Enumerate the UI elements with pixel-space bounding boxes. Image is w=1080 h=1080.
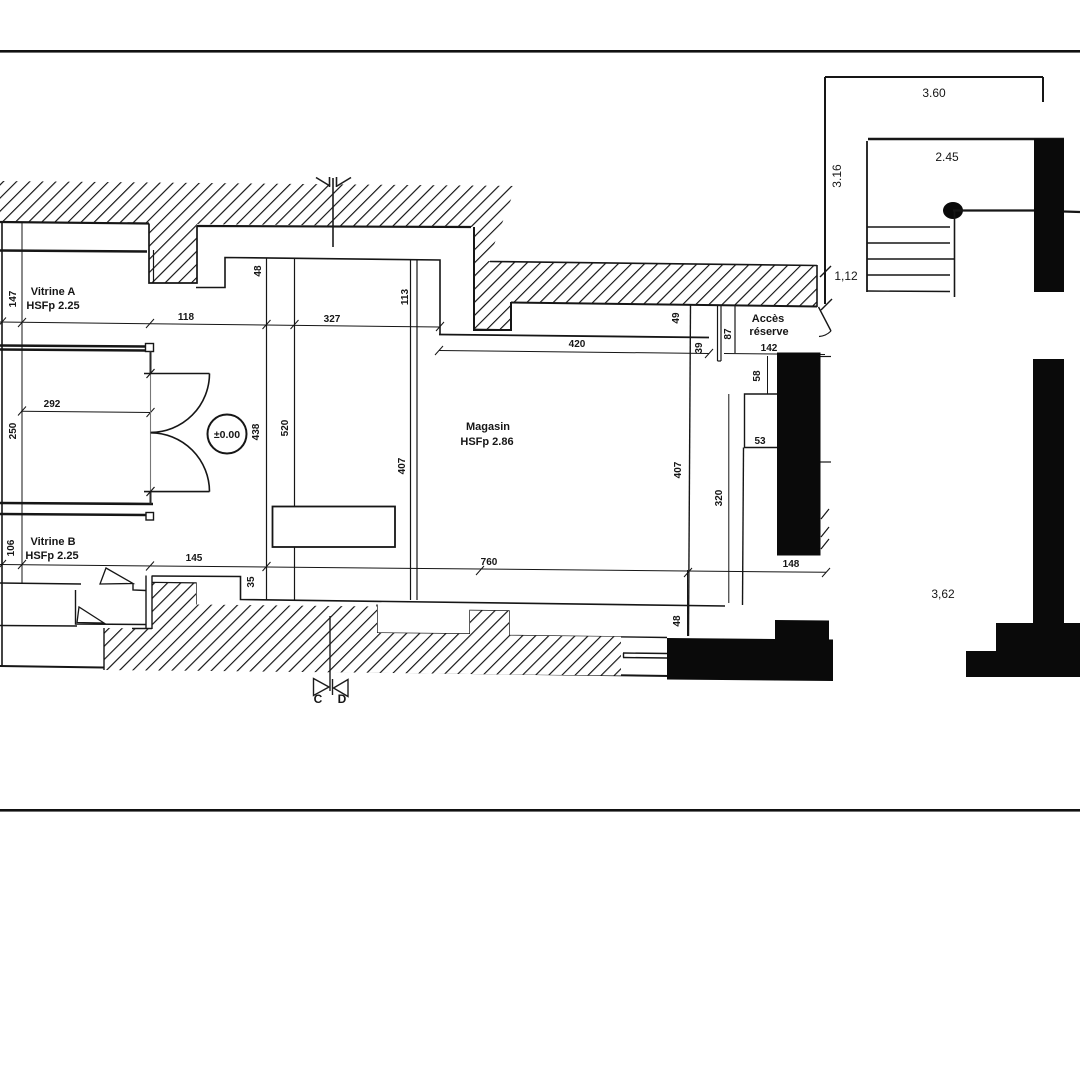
- svg-text:HSFp 2.25: HSFp 2.25: [25, 550, 78, 562]
- svg-text:53: 53: [754, 436, 766, 447]
- svg-text:2.45: 2.45: [935, 150, 959, 164]
- svg-text:118: 118: [178, 312, 195, 323]
- svg-text:C: C: [314, 692, 323, 706]
- svg-text:réserve: réserve: [749, 326, 788, 338]
- svg-text:39: 39: [694, 342, 705, 354]
- svg-text:48: 48: [672, 615, 683, 627]
- svg-text:HSFp 2.86: HSFp 2.86: [460, 436, 513, 448]
- svg-text:D: D: [338, 692, 347, 706]
- svg-text:407: 407: [673, 461, 684, 478]
- svg-text:1,12: 1,12: [834, 269, 858, 283]
- svg-text:407: 407: [397, 457, 408, 474]
- svg-text:3,62: 3,62: [931, 587, 955, 601]
- svg-text:320: 320: [714, 489, 725, 506]
- svg-text:292: 292: [44, 399, 61, 410]
- svg-text:Vitrine B: Vitrine B: [30, 536, 75, 548]
- svg-text:327: 327: [324, 314, 341, 325]
- svg-text:±0.00: ±0.00: [214, 429, 240, 441]
- svg-text:3.60: 3.60: [922, 86, 946, 100]
- svg-text:420: 420: [569, 339, 586, 350]
- svg-text:438: 438: [251, 423, 262, 440]
- svg-text:520: 520: [280, 419, 291, 436]
- svg-text:58: 58: [752, 370, 763, 382]
- svg-text:48: 48: [253, 265, 264, 277]
- svg-text:760: 760: [481, 557, 498, 568]
- svg-text:145: 145: [186, 553, 203, 564]
- svg-text:Vitrine A: Vitrine A: [31, 286, 76, 298]
- svg-text:87: 87: [723, 328, 734, 340]
- svg-text:HSFp 2.25: HSFp 2.25: [26, 300, 79, 312]
- svg-text:106: 106: [6, 539, 17, 556]
- svg-text:148: 148: [783, 559, 800, 570]
- svg-text:49: 49: [671, 312, 682, 324]
- svg-text:147: 147: [8, 290, 19, 307]
- svg-text:Magasin: Magasin: [466, 421, 510, 433]
- svg-text:3.16: 3.16: [830, 164, 844, 188]
- svg-text:250: 250: [8, 422, 19, 439]
- svg-text:Accès: Accès: [752, 313, 784, 325]
- svg-text:113: 113: [400, 288, 411, 305]
- svg-text:35: 35: [246, 576, 257, 588]
- svg-text:142: 142: [761, 343, 778, 354]
